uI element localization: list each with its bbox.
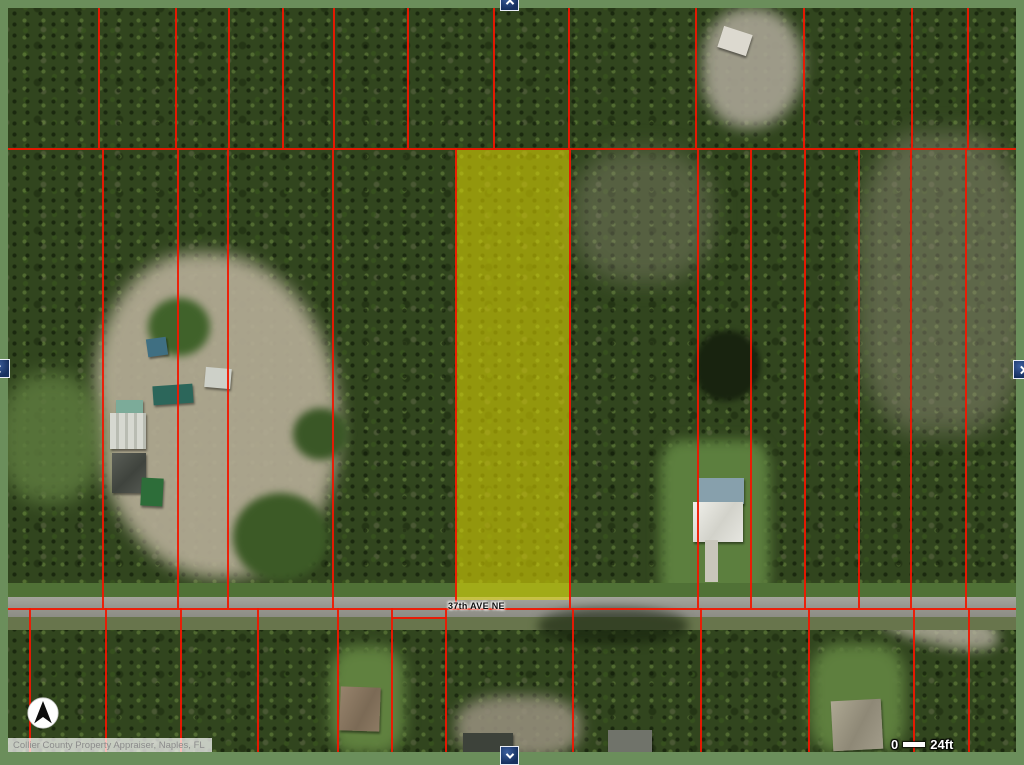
building-driveway-pool-house: [705, 540, 718, 582]
building-house-bottom-right: [831, 699, 884, 752]
chevron-down-icon: [505, 750, 513, 758]
scale-end-label: 24ft: [930, 737, 953, 752]
building-shed-white: [204, 367, 232, 389]
aerial-map[interactable]: 37th AVE NE Collier County Property Appr…: [8, 8, 1016, 752]
chevron-left-icon: [0, 364, 3, 372]
north-arrow-icon: [27, 697, 59, 729]
map-viewer-window: 37th AVE NE Collier County Property Appr…: [0, 0, 1024, 765]
attribution-text: Collier County Property Appraiser, Naple…: [8, 738, 212, 752]
scale-start-label: 0: [891, 737, 898, 752]
scale-bar: 0 24ft: [891, 737, 953, 752]
building-shed-blue: [146, 337, 168, 358]
street-label: 37th AVE NE: [448, 601, 505, 611]
chevron-up-icon: [505, 0, 513, 7]
road-shoulder-south: [8, 617, 1016, 630]
building-house-mid-bottom: [608, 730, 652, 752]
pan-left-button[interactable]: [0, 359, 10, 378]
pan-up-button[interactable]: [500, 0, 519, 11]
road-37th-ave-ne: [8, 597, 1016, 617]
building-house-brown: [339, 686, 381, 731]
pan-right-button[interactable]: [1013, 360, 1024, 379]
scale-bar-segment: [903, 742, 925, 747]
building-white-large: [110, 413, 146, 449]
building-house-pool: [693, 502, 743, 542]
building-pool-enclosure: [698, 478, 744, 504]
pan-down-button[interactable]: [500, 746, 519, 765]
chevron-right-icon: [1017, 365, 1024, 373]
building-shed-green: [140, 477, 163, 506]
building-house-teal: [152, 384, 193, 406]
selected-parcel-highlight[interactable]: [455, 150, 569, 600]
